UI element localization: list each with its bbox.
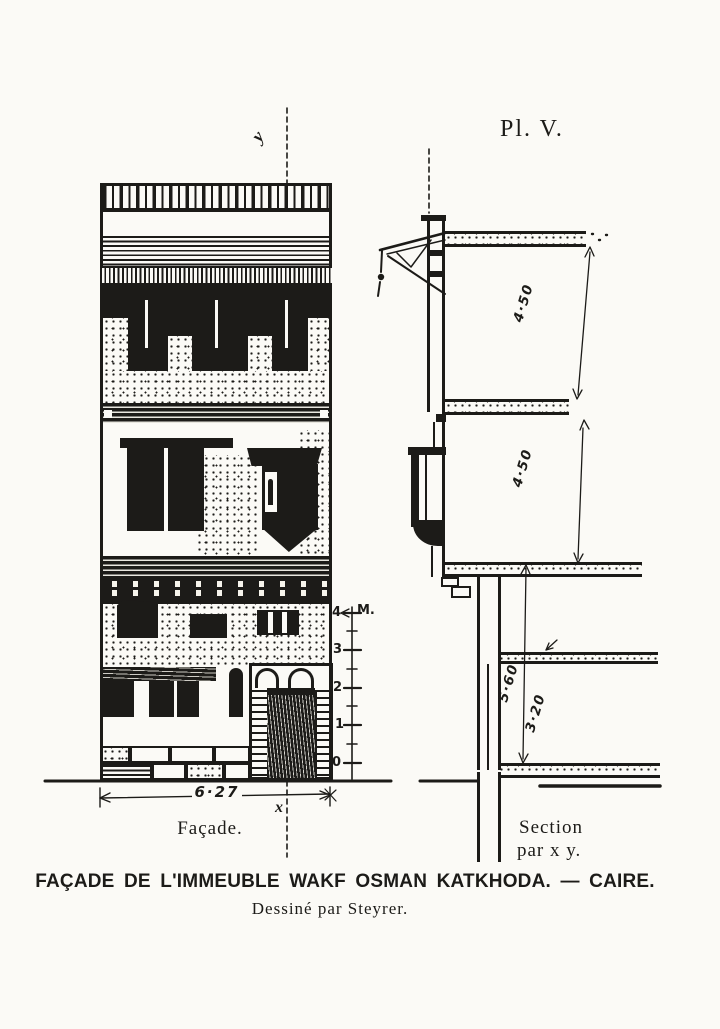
section-mashrabiya-midline xyxy=(425,455,427,527)
entrance-door xyxy=(267,688,315,778)
loggia-column-slit xyxy=(285,300,288,348)
scale-tick-3: 3 xyxy=(333,642,342,657)
arched-niche xyxy=(229,668,243,717)
second-storey-window xyxy=(168,448,204,531)
portal-arch-panel xyxy=(255,668,279,688)
scale-tick-1: 1 xyxy=(335,717,344,732)
section-foundation xyxy=(477,772,501,862)
ground-lines xyxy=(45,781,660,786)
section-upper-wall-fill xyxy=(431,224,440,332)
entresol-window xyxy=(117,600,158,638)
loggia-pier xyxy=(103,318,128,371)
entresol-window xyxy=(257,610,299,635)
frieze-band xyxy=(100,212,332,236)
ground-window xyxy=(103,681,134,717)
plate-page: Pl. V. xyxy=(0,0,720,1029)
dentil-band xyxy=(100,266,332,283)
mashrabiya-panel-arch xyxy=(268,479,273,505)
ashlar-stone xyxy=(214,746,250,763)
width-dimension-value: 6·27 xyxy=(192,783,242,801)
loggia-pier xyxy=(248,336,272,371)
entresol-window-slit xyxy=(282,612,287,633)
roof-balustrade xyxy=(100,183,332,212)
dimension-line-middle-storey xyxy=(574,420,589,563)
floor-band-upper xyxy=(100,403,332,423)
entresol-window xyxy=(190,614,227,638)
ashlar-stone xyxy=(100,763,152,780)
scale-tick-4: 4 xyxy=(332,605,341,620)
section-roof-slab xyxy=(445,231,586,247)
plate-credit: Dessiné par Steyrer. xyxy=(0,899,660,919)
ashlar-course-lower xyxy=(100,763,250,780)
putlog-hole xyxy=(320,410,328,418)
loggia-pier xyxy=(308,318,329,371)
section-ground-slab xyxy=(498,763,660,778)
section-floor-slab-upper xyxy=(445,399,569,415)
section-interior-fill xyxy=(540,791,602,806)
section-entresol-floor-slab xyxy=(498,652,658,664)
beam-end-holes-row xyxy=(104,581,328,587)
section-ground-wall-fill xyxy=(481,617,494,662)
putlog-hole xyxy=(104,410,112,418)
loggia-column-slit xyxy=(215,300,218,348)
plate-number: Pl. V. xyxy=(500,116,564,143)
section-mashrabiya-board xyxy=(408,447,446,455)
section-corbel-step xyxy=(451,586,471,598)
dimension-line-ground-storey xyxy=(519,565,530,763)
facade-left-edge xyxy=(100,283,103,780)
scale-bar-lines xyxy=(341,607,361,779)
beam-end-holes-row xyxy=(104,590,328,596)
plate-title: FAÇADE DE L'IMMEUBLE WAKF OSMAN KATKHODA… xyxy=(0,871,690,893)
section-ground-wall-line xyxy=(487,664,489,770)
door-lintel xyxy=(267,688,315,695)
ground-window xyxy=(177,681,199,717)
section-ground-wall xyxy=(477,577,501,770)
section-mashrabiya-face xyxy=(411,455,419,527)
entresol-window-slit xyxy=(268,612,273,633)
loggia-column-slit xyxy=(145,300,148,348)
ashlar-stone xyxy=(224,763,250,780)
section-caption-line2: par x y. xyxy=(517,840,581,862)
section-floor-slab-entresol-top xyxy=(445,562,642,577)
dimension-leader-entresol xyxy=(546,640,557,650)
section-marker-x: x xyxy=(275,799,283,817)
section-ground-wall-fill xyxy=(481,578,494,599)
ashlar-stone xyxy=(170,746,214,763)
ground-window xyxy=(149,681,174,717)
section-purlin xyxy=(427,250,445,256)
portal-arch-panel xyxy=(288,668,314,688)
ashlar-course-upper xyxy=(100,746,250,763)
scale-tick-2: 2 xyxy=(333,680,342,695)
facade-right-edge xyxy=(329,283,332,780)
scale-unit-label: M. xyxy=(357,603,375,618)
section-purlin xyxy=(427,271,445,277)
ashlar-stone xyxy=(130,746,170,763)
scale-tick-0: 0 xyxy=(332,755,341,770)
ground-window-lintel xyxy=(100,667,216,681)
loggia-pier xyxy=(168,336,192,371)
loggia-parapet-wall xyxy=(100,371,332,403)
ashlar-stone xyxy=(186,763,224,780)
dimension-line-top-storey xyxy=(573,247,594,399)
section-caption-line1: Section xyxy=(519,817,583,839)
cornice-band xyxy=(100,236,332,266)
ashlar-stone xyxy=(100,746,130,763)
wall-stipple-patch xyxy=(196,455,258,555)
ashlar-stone xyxy=(152,763,186,780)
window-lintel xyxy=(120,438,233,448)
floor-band-middle xyxy=(100,556,332,576)
second-storey-window xyxy=(127,448,164,531)
facade-caption: Façade. xyxy=(150,818,270,840)
section-pier-under-mashrabiya xyxy=(431,546,444,577)
